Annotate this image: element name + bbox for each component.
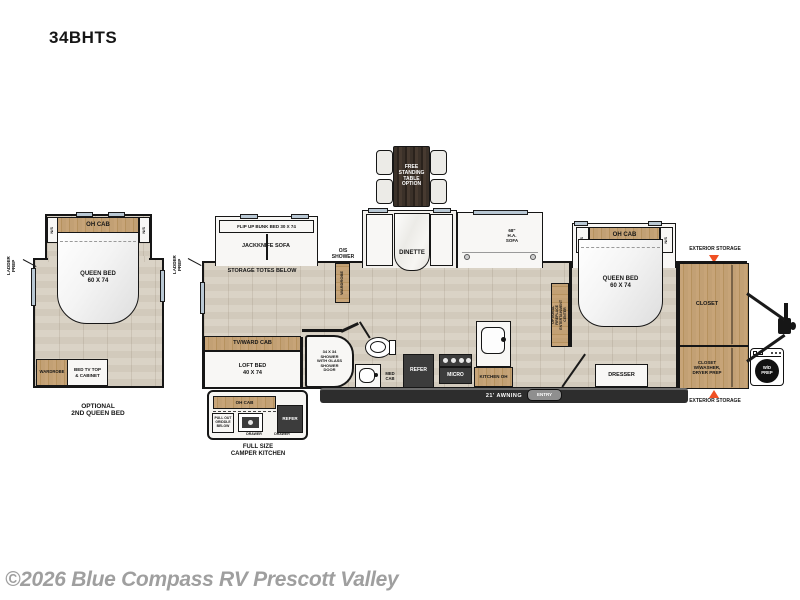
flip-up-bunk-label: FLIP UP BUNK BED 30 X 74 — [237, 224, 296, 229]
opt-bed-fold-line — [60, 241, 136, 242]
dinette-label: DINETTE — [399, 250, 425, 257]
ck-refer-label: REFER — [282, 416, 297, 421]
dresser: DRESSER — [595, 364, 648, 387]
entertainment-center-label: ENTERTAINMENT CENTER — [560, 300, 568, 330]
burner-2 — [451, 358, 456, 363]
dinette-bench-left — [366, 214, 393, 266]
loft-bed: LOFT BED 40 X 74 — [204, 351, 301, 388]
opt-window-left — [31, 268, 36, 306]
floorplan-page: 34BHTS OH CAB N/S N/S QUEEN BED 60 X 74 … — [0, 0, 800, 600]
entry-label: ENTRY — [537, 392, 552, 397]
kitchen-faucet — [501, 337, 506, 342]
tv-ward-cab: TV/WARD CAB — [204, 336, 301, 351]
ck-drawer-left-label: DRAWER — [240, 433, 268, 437]
main-window-left-wall — [200, 282, 205, 314]
refer-label: REFER — [410, 368, 427, 374]
bedroom-bed-fold-line — [581, 247, 660, 248]
free-standing-table-label: FREE STANDING TABLE OPTION — [399, 165, 425, 187]
bath-faucet — [374, 373, 378, 377]
bedroom-oh-cab-label: OH CAB — [613, 232, 637, 239]
awning-label: 21' AWNING — [486, 393, 522, 399]
sofa-label: 68" H.A. SOFA — [498, 228, 526, 243]
storage-totes-label: STORAGE TOTES BELOW — [212, 268, 312, 274]
opt-ns-right-label: N/S — [142, 227, 146, 234]
rear-closet-wd-divider — [731, 348, 733, 387]
hitch-frame-upper — [746, 292, 785, 321]
entertainment-center: OPTIONAL FIREPLACE ENTERTAINMENT CENTER — [551, 283, 569, 347]
refrigerator: REFER — [403, 354, 434, 388]
main-ladder-prep-label: LADDER PREP — [172, 246, 188, 284]
opt-window-top-right — [108, 212, 125, 217]
kitchen-oh-label: KITCHEN OH — [480, 374, 508, 379]
ck-counter-dash — [213, 411, 276, 412]
copyright-watermark: ©2026 Blue Compass RV Prescott Valley — [5, 568, 565, 592]
bunk-slide-window-left — [240, 214, 258, 219]
bedroom-left-wall — [569, 261, 572, 347]
ck-drawer-right-label: DRAWER — [268, 433, 296, 437]
tv-ward-cab-label: TV/WARD CAB — [233, 340, 272, 346]
rear-closet-wd-label: CLOSET W/WASHER, DRYER PREP — [692, 360, 721, 375]
exterior-storage-bottom-arrow — [709, 390, 719, 398]
loft-bed-label: LOFT BED 40 X 74 — [239, 363, 267, 375]
opt-ladder-prep-label: LADDER PREP — [6, 246, 22, 286]
microwave: MICRO — [439, 367, 472, 384]
exterior-storage-bottom-label: EXTERIOR STORAGE — [679, 399, 751, 405]
wd-prep-dot-3 — [779, 352, 781, 354]
flip-up-bunk: FLIP UP BUNK BED 30 X 74 — [219, 220, 314, 233]
toilet-seat — [370, 341, 386, 353]
fs-chair-1 — [376, 150, 393, 175]
free-standing-table: FREE STANDING TABLE OPTION — [393, 146, 430, 207]
dinette-bench-right — [430, 214, 453, 266]
rear-closet-washer-dryer: CLOSET W/WASHER, DRYER PREP — [679, 346, 749, 389]
fs-chair-4 — [430, 179, 447, 204]
dinette-table: DINETTE — [394, 213, 430, 271]
hitch-ball-mount — [790, 322, 796, 330]
awning-bar: 21' AWNING — [320, 388, 688, 403]
ck-oh-cab-label: OH CAB — [236, 400, 254, 405]
bedroom-ns-right-label: N/S — [664, 237, 668, 244]
page-title: 34BHTS — [49, 28, 189, 47]
main-wardrobe-label: WARDROBE — [340, 271, 344, 295]
bedroom-queen-bed-label: QUEEN BED 60 X 74 — [603, 276, 639, 289]
opt-queen-bed: QUEEN BED 60 X 74 — [57, 232, 139, 324]
jackknife-sofa-divider — [266, 234, 268, 260]
toilet-tank — [389, 340, 396, 355]
bath-top-wall — [302, 329, 342, 332]
camper-kitchen-caption: FULL SIZE CAMPER KITCHEN — [212, 444, 304, 457]
outside-shower-label: O/S SHOWER — [325, 249, 361, 260]
main-ladder-prep-pointer — [188, 258, 202, 266]
opt-bed-tv-label: BED TV TOP & CABINET — [74, 367, 101, 377]
bath-left-wall — [300, 337, 303, 389]
med-cab-label: MED CAB — [379, 372, 401, 381]
shower-34x34: 34 X 34 SHOWER WITH GLASS SHOWER DOOR — [305, 335, 354, 388]
opt-unit-caption: OPTIONAL 2ND QUEEN BED — [43, 403, 153, 418]
bedroom-window-left — [574, 221, 588, 226]
opt-queen-bed-label: QUEEN BED 60 X 74 — [80, 271, 116, 284]
opt-wardrobe: WARDROBE — [36, 359, 68, 386]
sofa-seat-line — [462, 252, 538, 253]
main-wardrobe: WARDROBE — [335, 263, 350, 303]
ck-griddle-label: PULL OUT GRIDDLE BELOW — [215, 417, 232, 428]
burner-1 — [443, 358, 448, 363]
ck-oh-cab: OH CAB — [213, 396, 276, 409]
opt-ns-left-label: N/S — [50, 227, 54, 234]
rear-closet: CLOSET — [679, 263, 749, 346]
bedroom-window-right — [648, 221, 662, 226]
opt-window-top-left — [76, 212, 93, 217]
bedroom-queen-bed: QUEEN BED 60 X 74 — [578, 239, 663, 327]
bunk-slide-window-right — [291, 214, 309, 219]
opt-bed-tv-cabinet: BED TV TOP & CABINET — [67, 359, 108, 386]
ck-refer: REFER — [277, 405, 303, 433]
hitch-jack — [784, 303, 788, 319]
sofa-cupholder-left — [464, 254, 470, 260]
dresser-label: DRESSER — [608, 372, 635, 378]
wd-prep-dot-2 — [775, 352, 777, 354]
fs-chair-2 — [376, 179, 393, 204]
opt-oh-cab-label: OH CAB — [86, 222, 110, 229]
burner-4 — [466, 358, 471, 363]
burner-3 — [459, 358, 464, 363]
bath-sink — [359, 368, 375, 383]
ck-stove-burner — [248, 420, 253, 425]
sofa-cupholder-right — [530, 254, 536, 260]
wd-prep-drum: W/D PREP — [755, 359, 779, 383]
sofa-slide-window — [473, 210, 528, 215]
rear-closet-divider — [731, 265, 733, 344]
exterior-storage-top-label: EXTERIOR STORAGE — [681, 247, 749, 253]
opt-wardrobe-label: WARDROBE — [40, 370, 65, 375]
opt-nightstand-right: N/S — [139, 217, 150, 243]
dinette-window-right — [433, 208, 451, 213]
ck-griddle: PULL OUT GRIDDLE BELOW — [212, 413, 234, 433]
micro-label: MICRO — [447, 373, 464, 379]
wd-prep-label: W/D PREP — [761, 366, 772, 375]
dinette-window-left — [368, 208, 388, 213]
wd-prep-dot-1 — [771, 352, 773, 354]
entry-step: ENTRY — [527, 389, 562, 401]
opt-oh-cab: OH CAB — [57, 217, 139, 233]
shower-label: 34 X 34 SHOWER WITH GLASS SHOWER DOOR — [317, 350, 342, 372]
fs-chair-3 — [430, 150, 447, 175]
opt-window-right — [160, 270, 165, 302]
rear-closet-label: CLOSET — [696, 301, 718, 307]
kitchen-oh-cab: KITCHEN OH — [474, 367, 513, 387]
